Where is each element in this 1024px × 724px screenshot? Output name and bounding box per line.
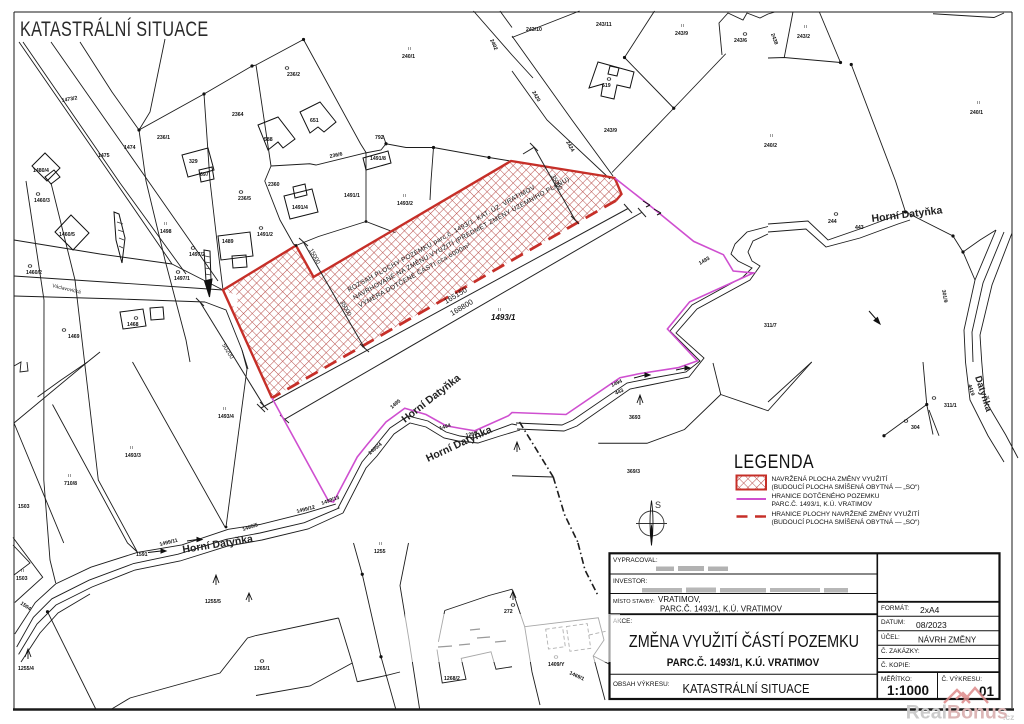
svg-text:243/11: 243/11 bbox=[596, 22, 612, 28]
svg-text:651: 651 bbox=[310, 118, 319, 124]
svg-text:2xA4: 2xA4 bbox=[920, 605, 940, 615]
svg-text:1255/4: 1255/4 bbox=[18, 666, 34, 672]
svg-text:1497/2: 1497/2 bbox=[189, 252, 205, 258]
svg-text:Bonus: Bonus bbox=[947, 702, 1008, 724]
svg-text:1493/1: 1493/1 bbox=[491, 313, 516, 322]
svg-text:311/1: 311/1 bbox=[944, 403, 957, 409]
svg-text:II: II bbox=[498, 307, 502, 312]
svg-text:329: 329 bbox=[189, 159, 198, 165]
svg-text:236/2: 236/2 bbox=[287, 72, 300, 78]
svg-text:PARC.Č. 1493/1, K.Ú. VRATIM: PARC.Č. 1493/1, K.Ú. VRATIMOV bbox=[660, 605, 783, 614]
svg-text:INVESTOR:: INVESTOR: bbox=[613, 578, 648, 585]
svg-text:II: II bbox=[977, 100, 981, 105]
svg-text:VYPRACOVAL:: VYPRACOVAL: bbox=[613, 557, 658, 564]
svg-text:240/1: 240/1 bbox=[402, 54, 415, 60]
svg-text:244: 244 bbox=[828, 219, 837, 225]
svg-text:II: II bbox=[681, 23, 685, 28]
svg-text:1409/Y: 1409/Y bbox=[548, 662, 565, 668]
svg-text:ÚČEL:: ÚČEL: bbox=[881, 632, 900, 641]
svg-text:443: 443 bbox=[855, 225, 864, 231]
svg-text:.cz: .cz bbox=[1003, 712, 1014, 722]
svg-text:1474: 1474 bbox=[124, 145, 136, 151]
svg-text:243/9: 243/9 bbox=[604, 128, 617, 134]
svg-text:1491/2: 1491/2 bbox=[257, 232, 273, 238]
svg-text:DATUM:: DATUM: bbox=[881, 619, 905, 626]
svg-text:ZMĚNA VYUŽITÍ ČÁSTÍ POZEMKU: ZMĚNA VYUŽITÍ ČÁSTÍ POZEMKU bbox=[629, 630, 859, 651]
svg-text:OBSAH VÝKRESU:: OBSAH VÝKRESU: bbox=[613, 679, 670, 688]
svg-text:1491/4: 1491/4 bbox=[292, 205, 308, 211]
svg-text:MÍSTO STAVBY:: MÍSTO STAVBY: bbox=[613, 598, 655, 605]
svg-text:NAVRŽENÁ PLOCHA ZMĚNY VYUŽI: NAVRŽENÁ PLOCHA ZMĚNY VYUŽITÍ bbox=[772, 474, 888, 483]
svg-text:697: 697 bbox=[200, 172, 209, 178]
svg-text:Č. ZAKÁZKY:: Č. ZAKÁZKY: bbox=[881, 646, 920, 655]
svg-text:HRANICE DOTČENÉHO POZEMKU: HRANICE DOTČENÉHO POZEMKU bbox=[772, 491, 880, 500]
svg-text:710/8: 710/8 bbox=[64, 481, 77, 487]
svg-text:II: II bbox=[770, 133, 774, 138]
svg-text:(BUDOUCÍ PLOCHA SMÍŠENÁ OBY: (BUDOUCÍ PLOCHA SMÍŠENÁ OBYTNÁ — „SO“) bbox=[772, 482, 920, 491]
svg-text:Real: Real bbox=[906, 702, 947, 724]
svg-text:FORMÁT:: FORMÁT: bbox=[881, 603, 909, 612]
svg-text:1265/1: 1265/1 bbox=[254, 666, 270, 672]
svg-text:792: 792 bbox=[375, 135, 384, 141]
svg-text:1493/2: 1493/2 bbox=[397, 201, 413, 207]
svg-text:PARC.Č. 1493/1, K.Ú. VRATIM: PARC.Č. 1493/1, K.Ú. VRATIMOV bbox=[667, 655, 819, 669]
svg-text:2364: 2364 bbox=[232, 112, 244, 118]
svg-text:369/3: 369/3 bbox=[627, 469, 640, 475]
svg-text:243/6: 243/6 bbox=[734, 38, 747, 44]
svg-text:240/1: 240/1 bbox=[970, 110, 983, 116]
svg-text:PARC.Č. 1493/1, K.Ú. VRATIM: PARC.Č. 1493/1, K.Ú. VRATIMOV bbox=[772, 499, 873, 508]
svg-text:MĚŘÍTKO:: MĚŘÍTKO: bbox=[881, 674, 912, 683]
svg-text:Č. KOPIE:: Č. KOPIE: bbox=[881, 660, 911, 669]
svg-text:08/2023: 08/2023 bbox=[916, 620, 947, 630]
svg-text:1503: 1503 bbox=[18, 504, 30, 510]
svg-text:1460/3: 1460/3 bbox=[34, 198, 50, 204]
svg-text:1:1000: 1:1000 bbox=[887, 683, 929, 698]
svg-text:II: II bbox=[68, 473, 72, 478]
svg-text:VRATIMOV,: VRATIMOV, bbox=[658, 595, 701, 604]
svg-text:1503: 1503 bbox=[16, 576, 28, 582]
svg-text:II: II bbox=[164, 221, 168, 226]
svg-text:1469: 1469 bbox=[68, 334, 80, 340]
svg-text:2360: 2360 bbox=[268, 182, 280, 188]
svg-text:II: II bbox=[408, 46, 412, 51]
svg-text:588: 588 bbox=[264, 137, 273, 143]
svg-text:619: 619 bbox=[602, 83, 611, 89]
svg-text:II: II bbox=[379, 541, 383, 546]
svg-text:1255: 1255 bbox=[374, 549, 386, 555]
svg-text:240/2: 240/2 bbox=[764, 143, 777, 149]
svg-text:KATASTRÁLNÍ SITUACE: KATASTRÁLNÍ SITUACE bbox=[683, 680, 810, 696]
svg-text:(BUDOUCÍ PLOCHA SMÍŠENÁ OBY: (BUDOUCÍ PLOCHA SMÍŠENÁ OBYTNÁ — „SO“) bbox=[772, 517, 920, 526]
svg-text:II: II bbox=[403, 193, 407, 198]
svg-text:NÁVRH ZMĚNY: NÁVRH ZMĚNY bbox=[918, 636, 977, 645]
svg-text:1497/1: 1497/1 bbox=[174, 276, 190, 282]
svg-text:243/2: 243/2 bbox=[797, 34, 810, 40]
svg-text:II: II bbox=[21, 568, 25, 573]
svg-text:II: II bbox=[130, 445, 134, 450]
svg-text:1491/8: 1491/8 bbox=[370, 156, 386, 162]
svg-text:1591: 1591 bbox=[136, 552, 148, 558]
svg-text:3693: 3693 bbox=[629, 415, 641, 421]
svg-text:1475: 1475 bbox=[98, 153, 110, 159]
svg-text:304: 304 bbox=[911, 425, 920, 431]
svg-text:1255/5: 1255/5 bbox=[205, 599, 221, 605]
svg-text:1268/2: 1268/2 bbox=[444, 676, 460, 682]
svg-text:II: II bbox=[223, 406, 227, 411]
svg-text:1498: 1498 bbox=[160, 229, 172, 235]
svg-text:HRANICE PLOCHY NAVRŽENÉ ZMĚ: HRANICE PLOCHY NAVRŽENÉ ZMĚNY VYUŽITÍ bbox=[772, 509, 920, 518]
svg-text:1491/1: 1491/1 bbox=[344, 193, 360, 199]
svg-text:Č. VÝKRESU:: Č. VÝKRESU: bbox=[942, 674, 983, 683]
svg-text:311/7: 311/7 bbox=[764, 323, 777, 329]
svg-text:1493/4: 1493/4 bbox=[218, 414, 234, 420]
svg-text:243/10: 243/10 bbox=[526, 27, 542, 33]
svg-text:243/9: 243/9 bbox=[675, 31, 688, 37]
svg-text:236/5: 236/5 bbox=[238, 196, 251, 202]
svg-text:1468: 1468 bbox=[127, 322, 139, 328]
svg-text:S: S bbox=[655, 500, 661, 510]
svg-text:LEGENDA: LEGENDA bbox=[734, 451, 814, 473]
svg-text:1480/4: 1480/4 bbox=[33, 168, 49, 174]
svg-text:1489: 1489 bbox=[222, 239, 234, 245]
svg-text:1493/3: 1493/3 bbox=[125, 453, 141, 459]
svg-text:II: II bbox=[804, 24, 808, 29]
svg-text:1460/5: 1460/5 bbox=[59, 232, 75, 238]
svg-text:236/1: 236/1 bbox=[157, 135, 170, 141]
svg-text:1460/2: 1460/2 bbox=[26, 270, 42, 276]
svg-text:KATASTRÁLNÍ SITUACE: KATASTRÁLNÍ SITUACE bbox=[20, 17, 208, 41]
